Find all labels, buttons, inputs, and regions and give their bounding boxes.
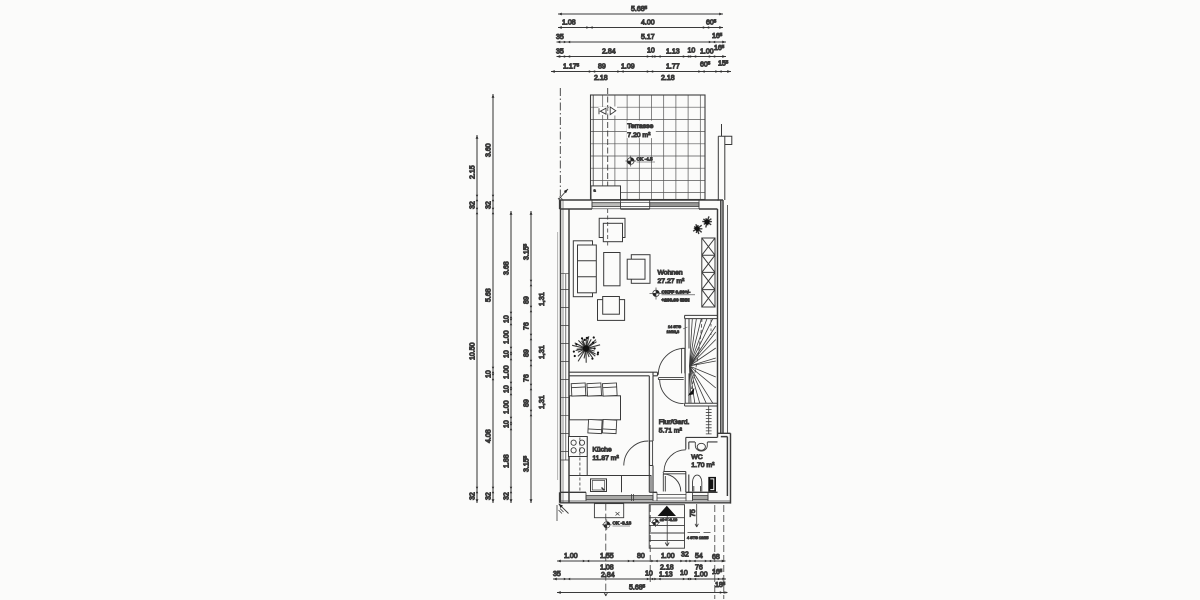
svg-text:1,31: 1,31 [539, 345, 546, 359]
svg-text:Küche: Küche [592, 447, 611, 454]
svg-text:4 STG 18/25: 4 STG 18/25 [687, 536, 709, 540]
svg-text:1.00: 1.00 [504, 400, 511, 414]
svg-text:80: 80 [637, 553, 645, 560]
svg-text:32: 32 [486, 492, 493, 500]
svg-text:35: 35 [556, 34, 564, 41]
svg-text:68: 68 [712, 554, 720, 561]
svg-text:OK -4.5: OK -4.5 [637, 157, 654, 162]
svg-text:1.70 m²: 1.70 m² [691, 462, 715, 469]
svg-text:1.77: 1.77 [666, 64, 680, 71]
svg-text:32: 32 [486, 201, 493, 209]
svg-text:10: 10 [688, 48, 696, 55]
svg-text:10: 10 [504, 385, 511, 393]
svg-text:WC: WC [691, 454, 702, 461]
svg-text:5.17: 5.17 [641, 34, 655, 41]
svg-text:89: 89 [524, 296, 531, 304]
svg-text:10: 10 [647, 48, 655, 55]
svg-text:14 STG: 14 STG [668, 325, 681, 329]
svg-text:1.00: 1.00 [661, 553, 675, 560]
svg-text:35: 35 [553, 571, 561, 578]
svg-text:11.87 m²: 11.87 m² [592, 455, 619, 462]
svg-text:Wohnen: Wohnen [658, 270, 683, 277]
svg-text:75: 75 [690, 509, 697, 517]
svg-text:2.84: 2.84 [602, 49, 616, 56]
svg-text:5.68: 5.68 [486, 288, 493, 302]
svg-text:76: 76 [695, 565, 703, 572]
svg-text:32: 32 [681, 552, 689, 559]
svg-text:10: 10 [504, 350, 511, 358]
svg-text:1.88: 1.88 [504, 454, 511, 468]
svg-text:1,31: 1,31 [539, 292, 546, 306]
svg-text:10: 10 [645, 571, 653, 578]
svg-text:32: 32 [470, 201, 477, 209]
svg-text:19/23,3: 19/23,3 [667, 330, 680, 334]
svg-text:3.60: 3.60 [486, 143, 493, 157]
svg-text:Flur/Gard.: Flur/Gard. [659, 419, 690, 426]
svg-text:4.00: 4.00 [641, 20, 655, 27]
svg-text:+206.60 üNN: +206.60 üNN [662, 298, 691, 303]
svg-text:10: 10 [504, 420, 511, 428]
svg-text:1.00: 1.00 [504, 330, 511, 344]
svg-text:10.50: 10.50 [470, 342, 477, 360]
svg-text:3.68: 3.68 [504, 261, 511, 275]
svg-text:2.18: 2.18 [594, 75, 608, 82]
svg-text:1.13: 1.13 [666, 49, 680, 56]
svg-text:54: 54 [695, 553, 703, 560]
svg-text:27.27 m²: 27.27 m² [658, 278, 686, 285]
svg-text:OKFF 0.00+/-: OKFF 0.00+/- [662, 290, 691, 295]
svg-text:32: 32 [470, 492, 477, 500]
svg-text:1.00: 1.00 [564, 553, 578, 560]
svg-text:89: 89 [598, 64, 606, 71]
svg-text:1.00: 1.00 [504, 365, 511, 379]
svg-text:76: 76 [524, 322, 531, 330]
svg-text:4.08: 4.08 [486, 429, 493, 443]
svg-text:10: 10 [680, 570, 688, 577]
svg-text:1,31: 1,31 [539, 395, 546, 409]
svg-text:10: 10 [504, 315, 511, 323]
svg-text:OK -3.18: OK -3.18 [613, 521, 632, 526]
svg-text:35: 35 [556, 49, 564, 56]
svg-text:2.15: 2.15 [470, 165, 477, 179]
svg-text:32: 32 [504, 492, 511, 500]
svg-text:2.84: 2.84 [601, 572, 615, 579]
svg-text:1.13: 1.13 [659, 572, 673, 579]
svg-text:76: 76 [524, 374, 531, 382]
svg-text:1.00: 1.00 [700, 49, 714, 56]
svg-text:1.00: 1.00 [694, 572, 708, 579]
svg-text:10: 10 [486, 370, 493, 378]
svg-text:89: 89 [524, 349, 531, 357]
svg-text:1.08: 1.08 [562, 20, 576, 27]
svg-text:1.09: 1.09 [621, 64, 635, 71]
svg-text:7.20 m²: 7.20 m² [627, 132, 651, 139]
svg-text:1.08: 1.08 [600, 565, 614, 572]
svg-text:1.55: 1.55 [600, 553, 614, 560]
svg-text:89: 89 [524, 399, 531, 407]
svg-text:5.71 m²: 5.71 m² [659, 428, 683, 435]
svg-text:2.18: 2.18 [661, 75, 675, 82]
svg-text:Terrasse: Terrasse [627, 123, 653, 130]
svg-text:2.18: 2.18 [660, 565, 674, 572]
